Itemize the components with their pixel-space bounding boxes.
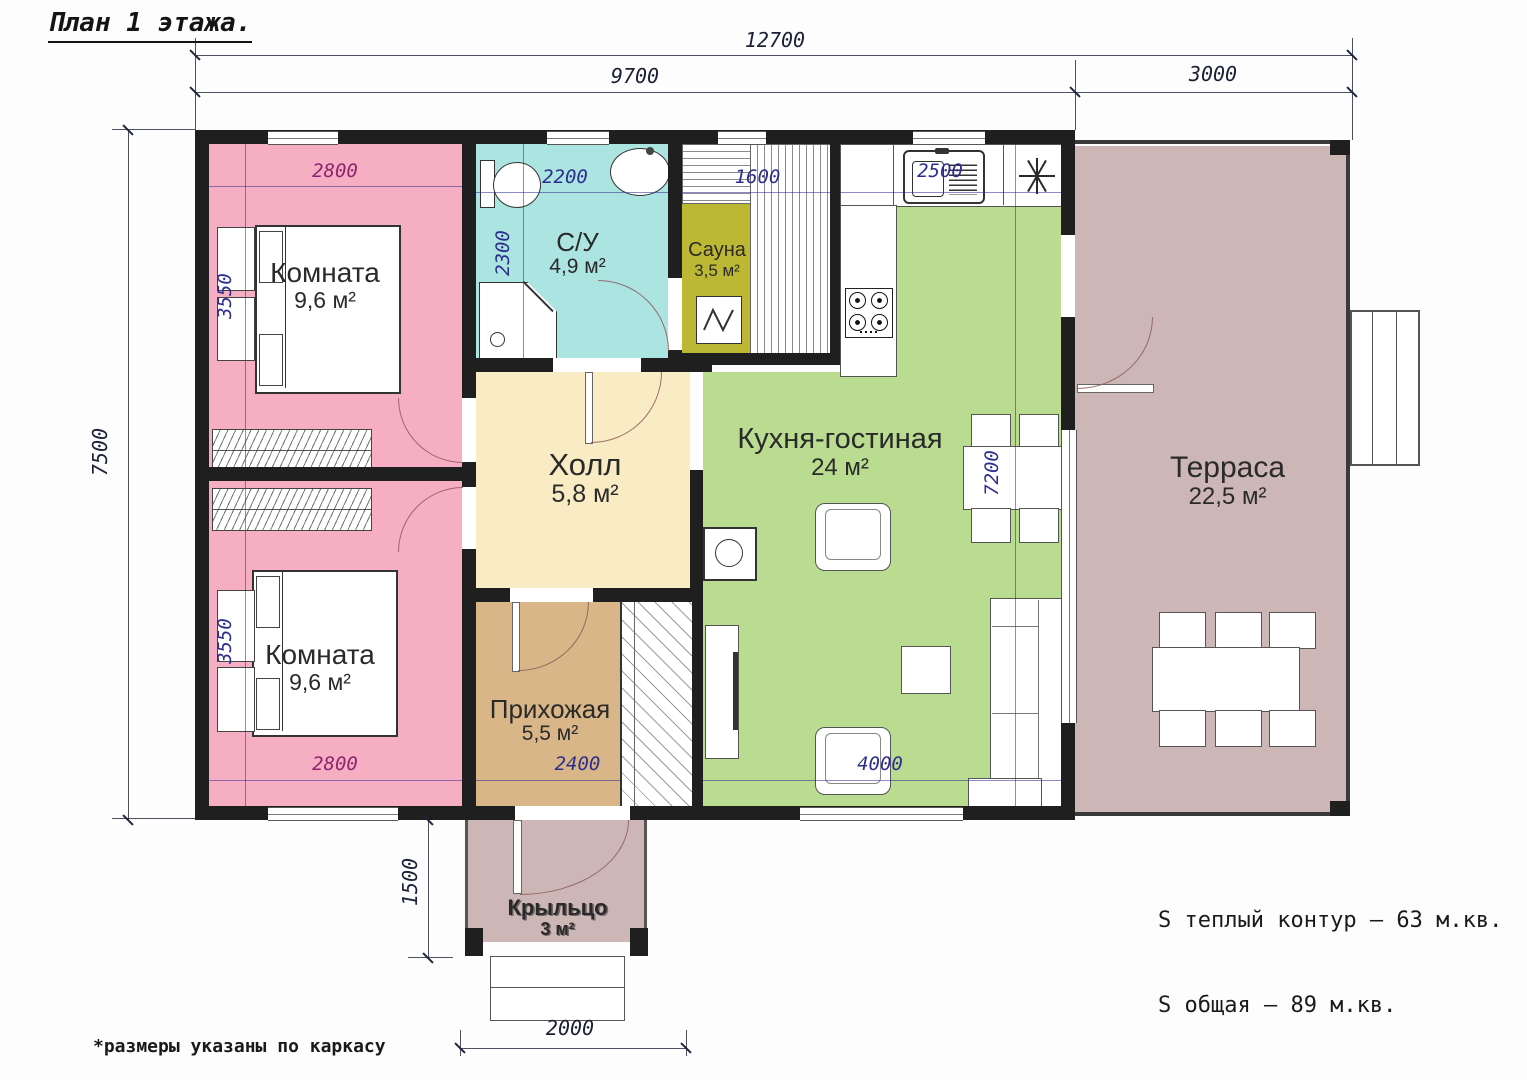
dim-line	[428, 820, 429, 958]
tv-icon	[733, 652, 738, 730]
dim-witness	[686, 1030, 687, 1056]
chair	[1215, 710, 1262, 747]
room-area: 5,5 м²	[460, 723, 640, 746]
stove-knobs	[860, 331, 862, 333]
wardrobe	[212, 429, 372, 472]
dim-label-hallway-width: 2400	[530, 753, 625, 775]
dim-line	[195, 55, 1352, 56]
dim-line	[128, 130, 129, 820]
room-name: Комната	[220, 640, 420, 670]
stove-burner	[871, 292, 888, 309]
armchair	[815, 503, 891, 571]
summary-total-area: S общая – 89 м.кв.	[1158, 993, 1396, 1018]
room-area: 22,5 м²	[1120, 484, 1335, 510]
room-label-porch: Крыльцо 3 м²	[470, 896, 645, 939]
window	[1061, 430, 1077, 723]
counter-line	[893, 144, 894, 205]
dim-line	[703, 780, 1061, 781]
dim-label-overall-width: 12700	[715, 28, 835, 52]
terrace-post	[1330, 801, 1350, 816]
dim-line	[460, 1048, 686, 1049]
chair	[971, 508, 1011, 543]
window	[268, 131, 338, 145]
room-area: 3,5 м²	[678, 262, 756, 280]
room-name: Комната	[225, 258, 425, 288]
chair	[1159, 612, 1206, 649]
room-label-kitchen-living: Кухня-гостиная 24 м²	[715, 424, 965, 481]
room-name: Крыльцо	[470, 896, 645, 920]
room-label-hall: Холл 5,8 м²	[480, 448, 690, 508]
terrace-table	[1152, 647, 1300, 712]
room-area: 3 м²	[470, 920, 645, 939]
terrace-wall-right	[1346, 140, 1350, 816]
dim-label-sauna-width: 1600	[715, 166, 800, 188]
summary-warm-area: S теплый контур – 63 м.кв.	[1158, 908, 1502, 933]
chair	[1269, 612, 1316, 649]
stove-burner	[849, 314, 866, 331]
room-label-bedroom1: Комната 9,6 м²	[225, 258, 425, 313]
chair	[1215, 612, 1262, 649]
heater-zigzag	[697, 297, 741, 343]
wall	[682, 353, 840, 365]
window	[718, 131, 766, 145]
washing-machine-drum	[715, 539, 743, 567]
dim-label-porch-width: 2000	[495, 1016, 645, 1040]
room-name: С/У	[495, 228, 660, 256]
dim-label-porch-depth: 1500	[398, 842, 422, 922]
dim-label-terrace-width: 3000	[1153, 62, 1273, 86]
door-gap	[515, 806, 630, 820]
room-area: 9,6 м²	[220, 670, 420, 695]
dim-label-overall-height: 7500	[88, 412, 112, 492]
room-label-bathroom: С/У 4,9 м²	[495, 228, 660, 279]
room-area: 4,9 м²	[495, 256, 660, 279]
wall	[830, 144, 840, 365]
chair	[1019, 508, 1059, 543]
window	[800, 807, 963, 821]
window	[268, 807, 398, 821]
dim-line	[1015, 144, 1016, 806]
dim-label-living-depth: 7200	[981, 433, 1003, 513]
door-gap	[668, 278, 682, 350]
room-label-sauna: Сауна 3,5 м²	[678, 240, 756, 280]
chair	[1159, 710, 1206, 747]
terrace-wall-bottom	[1075, 812, 1348, 816]
pillow	[259, 334, 283, 386]
page-title: План 1 этажа.	[48, 8, 252, 43]
terrace-wall-top	[1075, 140, 1348, 144]
room-area: 9,6 м²	[225, 288, 425, 313]
floor-plan: 12700 9700 3000 7500 1500 2000 2800 3550…	[0, 0, 1527, 1080]
dim-label-main-width: 9700	[575, 64, 695, 88]
door-gap	[462, 398, 476, 462]
door-gap	[553, 358, 641, 372]
wardrobe	[212, 488, 372, 531]
dim-line	[476, 192, 668, 193]
dim-label-bathroom-width: 2200	[520, 166, 610, 188]
sink-faucet	[935, 148, 949, 154]
stove-burner	[871, 314, 888, 331]
chair	[1269, 710, 1316, 747]
porch-wall-left	[465, 820, 468, 942]
sauna-heater-icon	[696, 296, 742, 344]
dining-table	[963, 446, 1065, 510]
room-name: Прихожая	[460, 695, 640, 723]
sink-icon	[610, 148, 670, 196]
porch-steps	[490, 956, 625, 989]
room-area: 24 м²	[715, 455, 965, 481]
armchair-seat	[825, 509, 881, 560]
room-name: Холл	[480, 448, 690, 481]
window	[547, 131, 609, 145]
faucet-icon	[646, 147, 654, 155]
washing-machine-icon	[703, 527, 757, 581]
dim-line	[195, 92, 1352, 93]
room-area: 5,8 м²	[480, 481, 690, 508]
dim-witness	[195, 38, 196, 130]
room-name: Терраса	[1120, 452, 1335, 484]
dim-label-kitchen-width: 2500	[905, 160, 975, 182]
dim-witness	[408, 957, 453, 958]
wall	[195, 467, 476, 481]
bay-window-mullion	[1396, 312, 1397, 464]
door-gap	[1061, 235, 1075, 317]
dim-line	[682, 192, 840, 193]
dim-witness	[112, 129, 195, 130]
bay-window	[1350, 310, 1420, 466]
door-gap	[510, 588, 593, 602]
dim-label-living-width: 4000	[835, 753, 925, 775]
terrace-post	[1330, 140, 1350, 155]
door-gap	[462, 487, 476, 549]
room-name: Сауна	[678, 240, 756, 262]
dim-line	[840, 192, 1061, 193]
footnote: *размеры указаны по каркасу	[93, 1036, 386, 1057]
room-label-hallway: Прихожая 5,5 м²	[460, 695, 640, 746]
dim-line	[209, 780, 462, 781]
counter-line	[1003, 144, 1004, 205]
vent-icon	[1036, 158, 1038, 194]
window	[913, 131, 985, 145]
shower-drain	[490, 332, 505, 347]
room-name: Кухня-гостиная	[715, 424, 965, 455]
bay-window-mullion	[1372, 312, 1373, 464]
room-label-terrace: Терраса 22,5 м²	[1120, 452, 1335, 510]
coffee-table	[901, 646, 951, 694]
dim-witness	[460, 1030, 461, 1056]
stove-burner	[849, 292, 866, 309]
dim-label-bedroom1-width: 2800	[280, 160, 390, 182]
dim-label-bedroom2-width: 2800	[280, 753, 390, 775]
room-label-bedroom2: Комната 9,6 м²	[220, 640, 420, 695]
pillow	[256, 576, 280, 628]
dim-line	[209, 186, 462, 187]
chair	[1019, 414, 1059, 449]
